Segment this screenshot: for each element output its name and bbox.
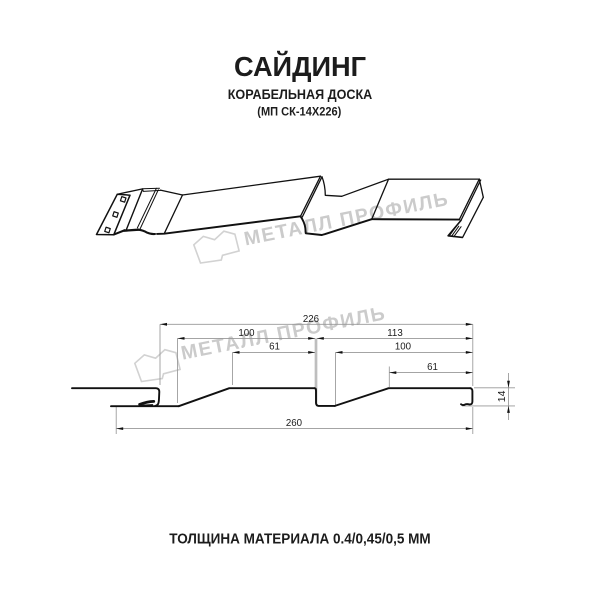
svg-text:(МП СК-14Х226): (МП СК-14Х226) <box>257 105 341 119</box>
svg-text:ТОЛЩИНА МАТЕРИАЛА 0.4/0,45/0,5: ТОЛЩИНА МАТЕРИАЛА 0.4/0,45/0,5 ММ <box>169 532 430 548</box>
svg-text:113: 113 <box>387 328 402 339</box>
svg-text:61: 61 <box>269 342 280 353</box>
svg-text:100: 100 <box>238 328 255 339</box>
svg-text:61: 61 <box>427 362 438 373</box>
svg-text:14: 14 <box>496 390 508 402</box>
svg-text:100: 100 <box>395 342 412 353</box>
svg-text:КОРАБЕЛЬНАЯ ДОСКА: КОРАБЕЛЬНАЯ ДОСКА <box>228 87 373 103</box>
svg-text:260: 260 <box>286 418 303 429</box>
svg-text:226: 226 <box>303 314 319 325</box>
svg-text:САЙДИНГ: САЙДИНГ <box>234 50 366 82</box>
